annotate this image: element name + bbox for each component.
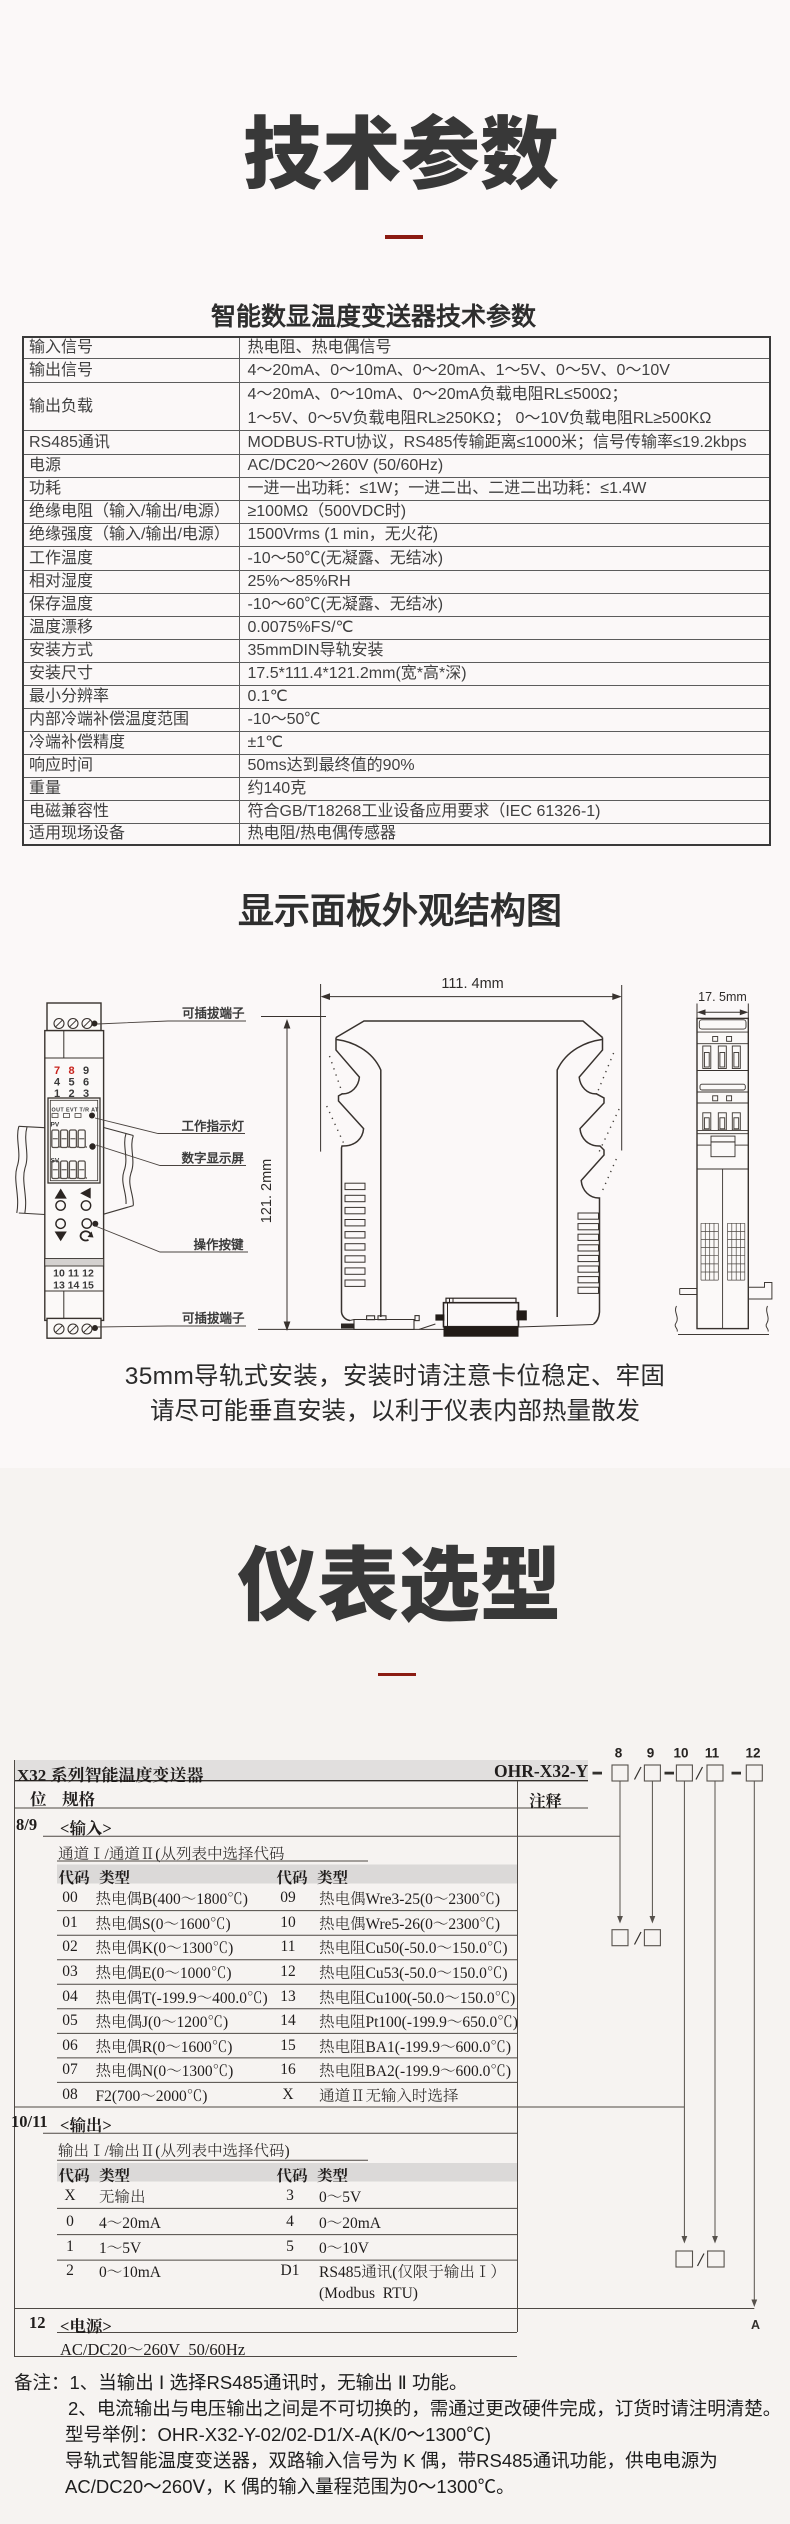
svg-text:121. 2mm: 121. 2mm bbox=[259, 1159, 275, 1223]
svg-text:5: 5 bbox=[68, 1077, 74, 1089]
svg-text:8: 8 bbox=[615, 1746, 623, 1761]
svg-text:9: 9 bbox=[83, 1065, 89, 1077]
svg-text:10: 10 bbox=[53, 1268, 65, 1280]
svg-text:13: 13 bbox=[53, 1280, 65, 1292]
svg-text:12: 12 bbox=[745, 1746, 760, 1761]
svg-text:11: 11 bbox=[705, 1746, 720, 1761]
svg-text:14: 14 bbox=[68, 1280, 80, 1292]
svg-text:6: 6 bbox=[83, 1077, 89, 1089]
svg-text:PV: PV bbox=[51, 1122, 60, 1129]
svg-text:11: 11 bbox=[68, 1268, 79, 1280]
svg-text:17. 5mm: 17. 5mm bbox=[698, 990, 747, 1004]
svg-text:9: 9 bbox=[647, 1746, 655, 1761]
svg-text:操作按键: 操作按键 bbox=[193, 1237, 244, 1252]
svg-text:7: 7 bbox=[54, 1065, 60, 1077]
svg-text:工作指示灯: 工作指示灯 bbox=[181, 1119, 244, 1134]
svg-text:数字显示屏: 数字显示屏 bbox=[180, 1151, 244, 1166]
svg-text:SV: SV bbox=[51, 1158, 60, 1165]
svg-text:15: 15 bbox=[82, 1280, 94, 1292]
svg-text:可插拔端子: 可插拔端子 bbox=[182, 1311, 245, 1326]
svg-text:可插拔端子: 可插拔端子 bbox=[182, 1006, 245, 1021]
svg-text:10: 10 bbox=[673, 1746, 688, 1761]
svg-text:4: 4 bbox=[54, 1077, 61, 1089]
svg-text:12: 12 bbox=[82, 1268, 94, 1280]
svg-text:111. 4mm: 111. 4mm bbox=[441, 976, 503, 992]
svg-text:8: 8 bbox=[68, 1065, 74, 1077]
svg-text:A: A bbox=[751, 2318, 760, 2332]
